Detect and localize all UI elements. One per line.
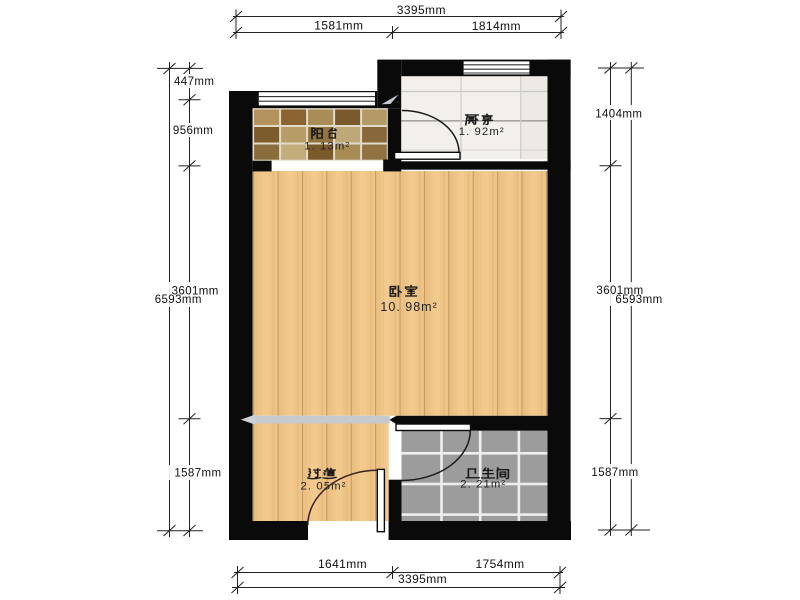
- svg-text:1641mm: 1641mm: [318, 557, 367, 571]
- svg-text:6593mm: 6593mm: [155, 294, 202, 306]
- svg-text:1814mm: 1814mm: [472, 19, 521, 33]
- svg-text:1587mm: 1587mm: [591, 467, 638, 479]
- svg-text:1754mm: 1754mm: [475, 557, 524, 571]
- svg-text:1. 92m²: 1. 92m²: [459, 126, 505, 138]
- svg-text:3395mm: 3395mm: [397, 3, 446, 17]
- svg-text:2. 05m²: 2. 05m²: [301, 480, 347, 492]
- svg-text:1404mm: 1404mm: [595, 108, 642, 120]
- svg-text:3395mm: 3395mm: [398, 572, 447, 586]
- svg-text:6593mm: 6593mm: [615, 294, 662, 306]
- svg-text:1587mm: 1587mm: [174, 468, 221, 480]
- svg-text:2. 21m²: 2. 21m²: [460, 479, 506, 491]
- svg-text:1. 13m²: 1. 13m²: [304, 140, 350, 152]
- svg-text:447mm: 447mm: [174, 76, 214, 88]
- svg-text:956mm: 956mm: [173, 125, 213, 137]
- svg-text:10. 98m²: 10. 98m²: [380, 300, 437, 314]
- svg-text:1581mm: 1581mm: [314, 18, 363, 32]
